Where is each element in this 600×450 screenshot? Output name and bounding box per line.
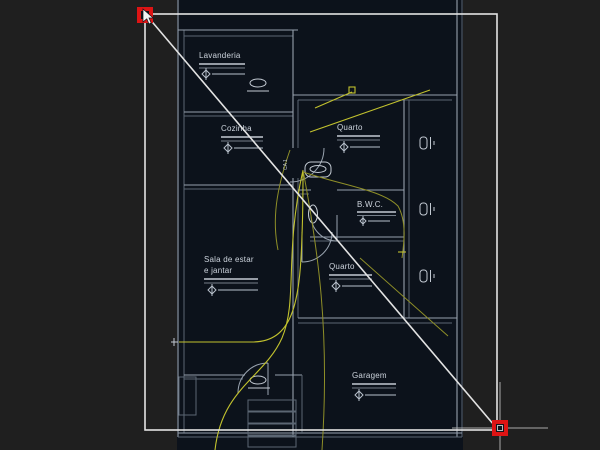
label-sala-line2: e jantar xyxy=(204,266,232,275)
door-tag-label: CA 1 xyxy=(283,159,289,170)
label-quarto-2: Quarto xyxy=(329,262,355,271)
drawing-canvas[interactable]: Lavanderia Cozinha Quarto B.W.C. Quarto … xyxy=(0,0,600,450)
cad-viewport[interactable]: Lavanderia Cozinha Quarto B.W.C. Quarto … xyxy=(0,0,600,450)
label-garagem: Garagem xyxy=(352,371,387,380)
label-bwc: B.W.C. xyxy=(357,200,383,209)
floor-plan-fill xyxy=(177,0,463,450)
label-lavanderia: Lavanderia xyxy=(199,51,241,60)
grip-end[interactable] xyxy=(492,420,508,436)
label-quarto-1: Quarto xyxy=(337,123,363,132)
label-sala-line1: Sala de estar xyxy=(204,255,254,264)
label-cozinha: Cozinha xyxy=(221,124,252,133)
